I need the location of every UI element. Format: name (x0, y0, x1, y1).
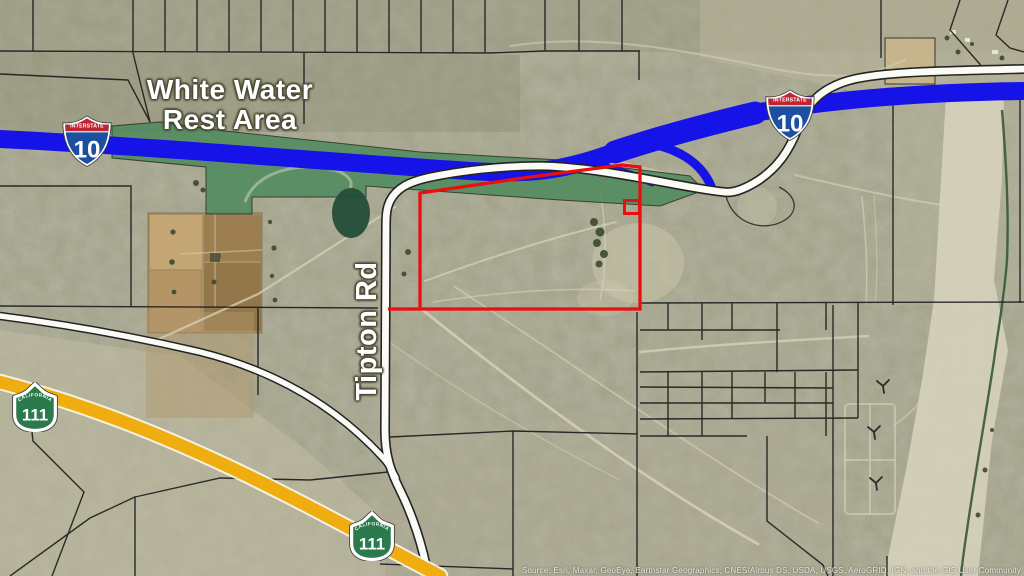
interstate-shield-header: INTERSTATE (773, 98, 807, 104)
rest-area-label-line1: White Water (110, 75, 350, 105)
ca-shield-number: 111 (22, 405, 48, 424)
map-attribution: Source: Esri, Maxar, GeoEye, Earthstar G… (522, 566, 1021, 575)
rest-area-label: White Water Rest Area (110, 75, 350, 135)
rest-area-label-line2: Rest Area (110, 105, 350, 135)
interstate-shield-header: INTERSTATE (70, 124, 104, 130)
interstate-shield-number: 10 (74, 137, 101, 164)
ca-shield-number: 111 (359, 534, 385, 553)
interstate-10-shield-west: INTERSTATE 10 (61, 114, 113, 168)
interstate-shield-number: 10 (777, 111, 804, 138)
interstate-10-shield-east: INTERSTATE 10 (764, 88, 816, 142)
aerial-parcel-map: White Water Rest Area Tipton Rd INTERSTA… (0, 0, 1024, 576)
tipton-road-label: Tipton Rd (352, 251, 384, 411)
ca-111-shield-west: CALIFORNIA 111 (12, 382, 58, 432)
pond (332, 188, 370, 238)
ca-111-shield-south: CALIFORNIA 111 (349, 511, 395, 561)
